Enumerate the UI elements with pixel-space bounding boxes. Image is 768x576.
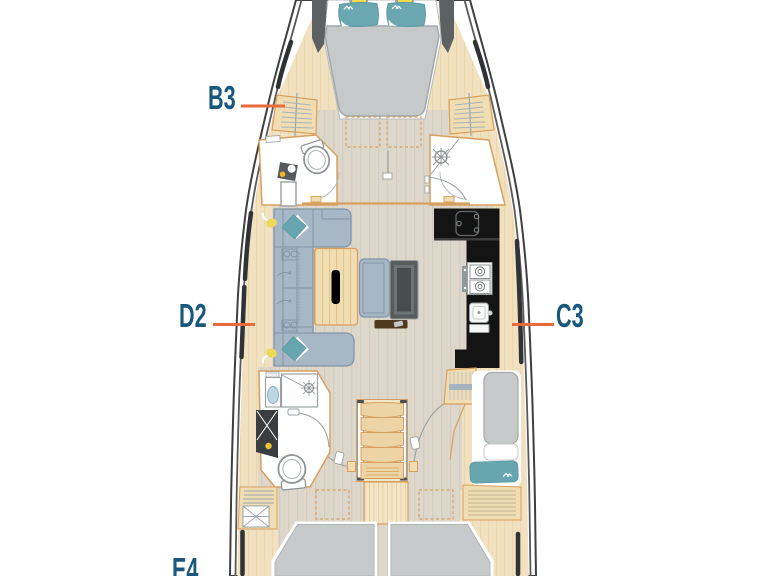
svg-text:D2: D2 <box>179 297 207 334</box>
svg-text:C3: C3 <box>556 297 584 334</box>
svg-text:B3: B3 <box>208 79 236 116</box>
svg-text:E4: E4 <box>172 551 199 576</box>
